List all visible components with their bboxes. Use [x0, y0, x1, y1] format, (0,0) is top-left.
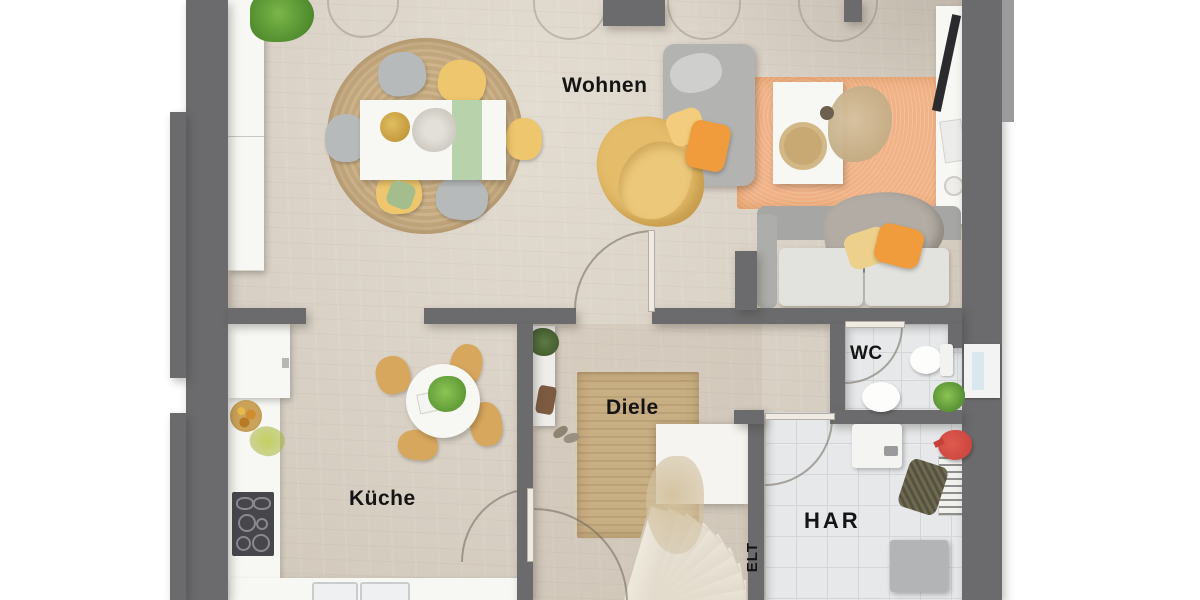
wall-stair-stub	[734, 410, 764, 424]
wall-living-hall-right	[652, 308, 962, 324]
storage-box	[890, 540, 948, 592]
burner-3	[238, 514, 256, 532]
wall-top-stub-right	[844, 0, 862, 22]
burner-6	[252, 534, 270, 552]
table-runner	[452, 100, 482, 180]
fridge-handle	[282, 358, 289, 368]
wall-right-main	[962, 0, 1002, 600]
door-leaf-living-hall	[648, 230, 655, 312]
sink-right	[360, 582, 410, 600]
wc-sink	[862, 382, 900, 412]
sideboard-divider	[228, 136, 264, 137]
wall-right-pillar	[1002, 0, 1014, 122]
floor-plan-canvas: Wohnen Küche Diele WC HAR ELT	[0, 0, 1200, 600]
red-watering-can	[938, 430, 972, 460]
wall-top-stub-center	[603, 0, 665, 26]
machine-panel	[884, 446, 898, 456]
burner-1	[236, 497, 254, 510]
door-leaf-har	[765, 413, 835, 420]
label-wc: WC	[850, 343, 883, 365]
toilet-tank	[940, 344, 953, 376]
plant-pot	[820, 106, 834, 120]
wall-left-ledge-lower	[170, 413, 186, 600]
door-leaf-kitchen	[527, 488, 534, 562]
decor-tray	[779, 122, 827, 170]
wall-left-main	[186, 0, 228, 600]
gold-bowl	[380, 112, 410, 142]
burner-5	[236, 536, 251, 551]
wall-wc-left	[830, 324, 845, 412]
cooktop	[232, 492, 274, 556]
dining-chair-yellow-2	[506, 118, 542, 160]
label-diele: Diele	[606, 396, 659, 420]
burner-4	[256, 518, 268, 530]
wc-window-glass	[972, 352, 984, 390]
wall-living-hall-left	[424, 308, 576, 324]
wall-kitchen-dining	[228, 308, 306, 324]
dry-plant	[646, 456, 704, 554]
label-wohnen: Wohnen	[562, 74, 647, 98]
desk-cup	[944, 176, 964, 196]
burner-2	[253, 497, 271, 510]
wall-wc-bottom	[830, 410, 962, 424]
centerpiece-flowers	[412, 108, 456, 152]
wall-sofa-stub	[735, 251, 757, 310]
sofa-armrest	[757, 214, 777, 308]
hall-shelf-plant	[529, 328, 559, 356]
fruit-bowl	[230, 400, 262, 432]
fridge	[228, 322, 290, 398]
toilet-bowl	[910, 346, 942, 374]
label-kueche: Küche	[349, 487, 416, 511]
label-elt: ELT	[744, 542, 761, 572]
wall-left-ledge-upper	[170, 112, 186, 378]
label-har: HAR	[804, 508, 861, 534]
door-leaf-wc	[845, 321, 905, 328]
sink-left	[312, 582, 358, 600]
